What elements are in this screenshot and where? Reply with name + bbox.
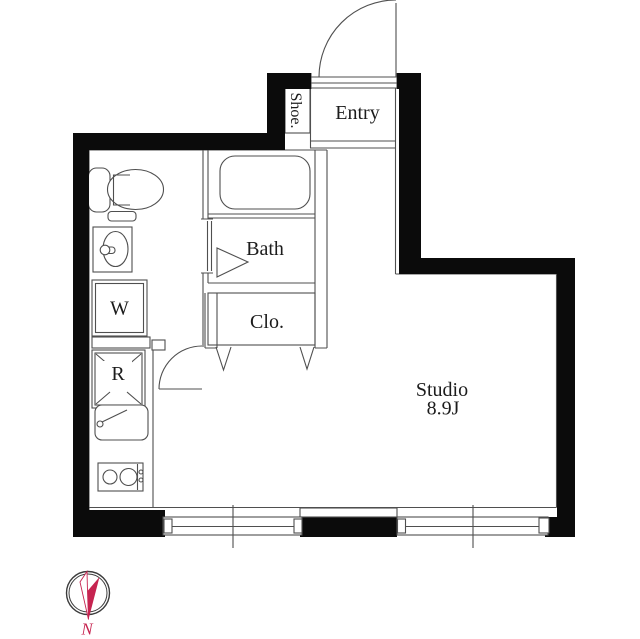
entry-door-swing xyxy=(319,0,396,77)
compass: N xyxy=(67,572,110,639)
label-refrigerator: R xyxy=(111,363,125,385)
kitchen-sink xyxy=(95,405,148,440)
window-stop xyxy=(164,519,172,533)
hanger-marks xyxy=(216,347,314,370)
wall-entry-right xyxy=(399,73,421,274)
window-stop xyxy=(398,519,406,533)
wall-bottom-left xyxy=(73,510,165,537)
label-closet: Clo. xyxy=(250,311,284,333)
wall-step xyxy=(399,258,575,274)
toilet-control xyxy=(108,212,136,222)
vanity-sink xyxy=(93,227,132,272)
wall-top-left xyxy=(73,133,285,150)
stove xyxy=(98,463,143,491)
bathtub xyxy=(220,156,310,209)
bath-door-mark xyxy=(217,248,248,277)
window-stop xyxy=(539,518,549,533)
wall-right xyxy=(557,258,575,537)
counter-edge xyxy=(92,337,150,348)
label-washer: W xyxy=(110,298,129,320)
label-bath: Bath xyxy=(246,238,284,260)
label-studio-area: 8.9J xyxy=(427,398,460,420)
vanity-tap xyxy=(100,245,110,255)
floor-plan: N Shoe. Entry Bath Clo. W R Studio 8.9J xyxy=(0,0,640,639)
walls xyxy=(73,73,575,537)
toilet-tank xyxy=(89,168,111,212)
toilet xyxy=(89,168,164,221)
compass-north-label: N xyxy=(80,620,94,639)
counter-edge-post xyxy=(152,340,165,350)
interior-door-swing xyxy=(159,346,202,389)
wall-left xyxy=(73,133,89,537)
wall-entry-top-a xyxy=(267,73,311,89)
label-entry: Entry xyxy=(335,102,379,124)
sill-strip xyxy=(300,508,397,517)
label-shoe-cabinet: Shoe. xyxy=(287,93,304,129)
compass-needle-hollow xyxy=(80,572,89,620)
window-stop xyxy=(294,519,302,533)
wall-bottom-mid xyxy=(300,516,397,537)
